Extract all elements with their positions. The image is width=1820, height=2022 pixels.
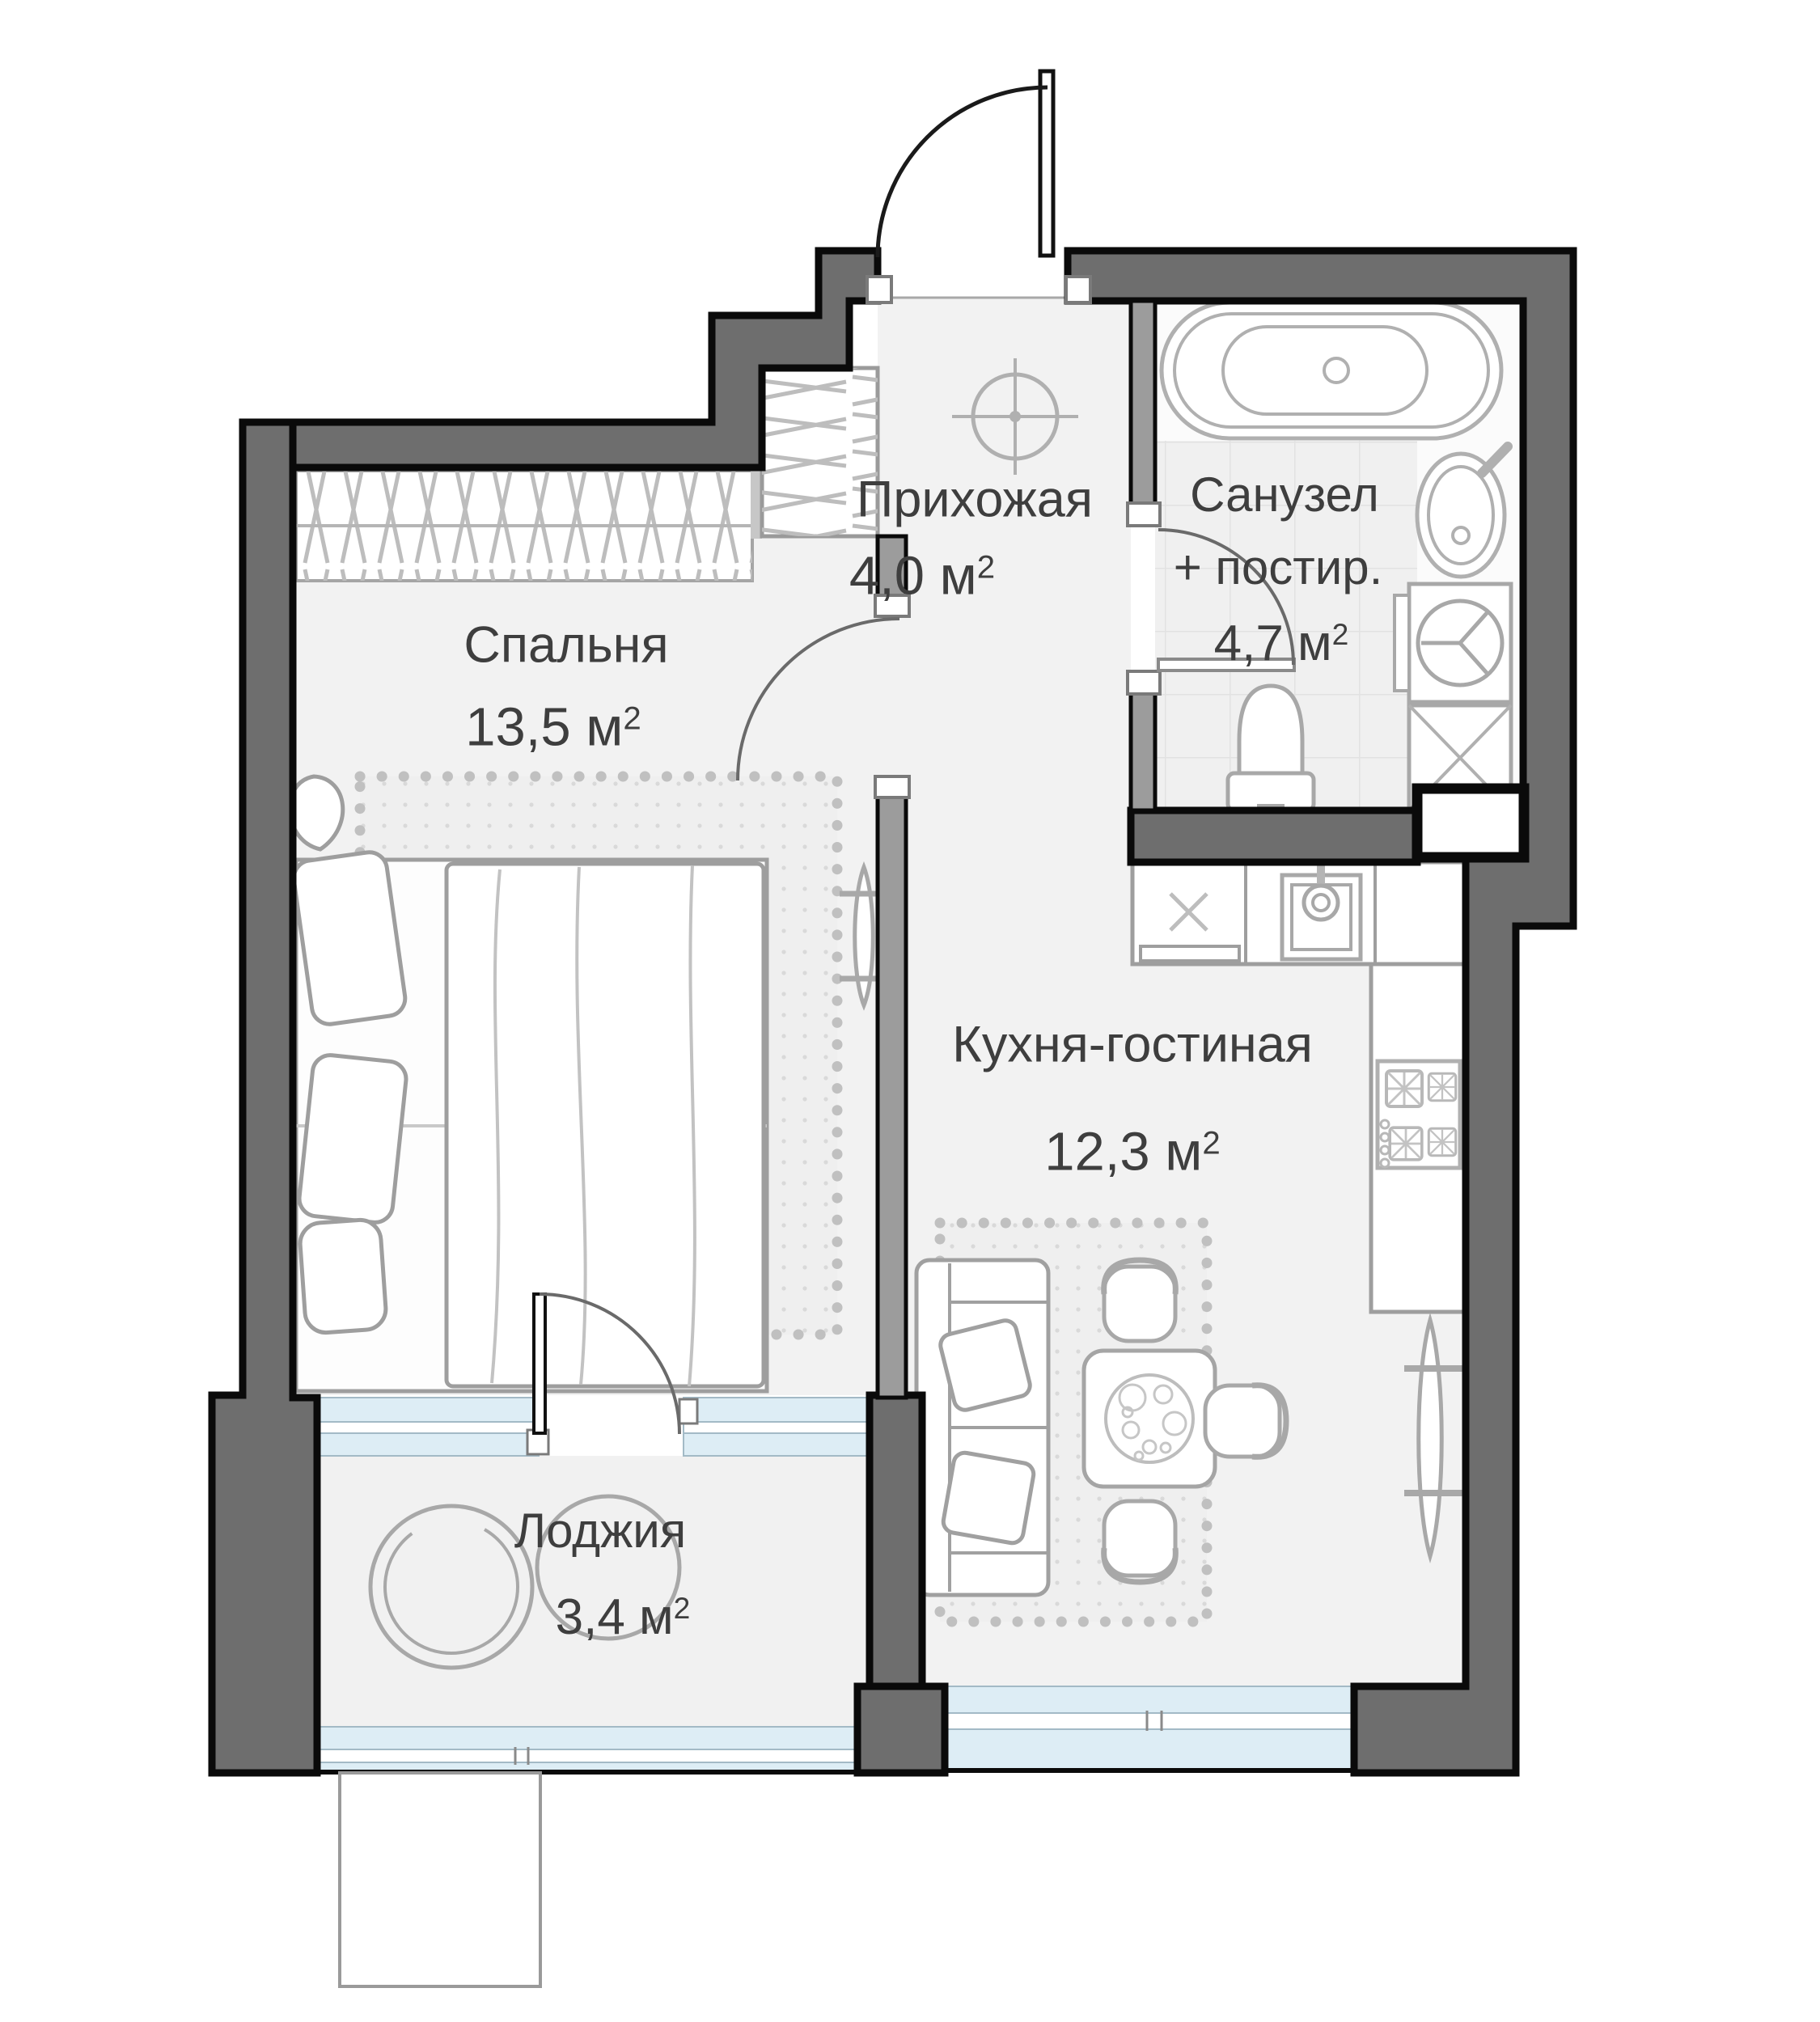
entrance-door bbox=[867, 71, 1090, 302]
room-name2: + постир. bbox=[1174, 540, 1383, 594]
bathroom-label: Санузел bbox=[1190, 471, 1379, 519]
chair bbox=[1104, 1260, 1176, 1341]
drawer-handle bbox=[1141, 946, 1239, 961]
wardrobe bbox=[296, 467, 762, 581]
chair bbox=[1104, 1501, 1176, 1582]
hallway-area: 4,0 м2 bbox=[849, 549, 995, 603]
pillow bbox=[942, 1451, 1035, 1545]
bed bbox=[291, 850, 767, 1391]
washing-machine-icon bbox=[1395, 584, 1511, 702]
room-name: Спальня bbox=[463, 617, 668, 674]
room-name: Лоджия bbox=[514, 1504, 687, 1558]
room-area-sup: 2 bbox=[623, 700, 641, 736]
bathtub-icon bbox=[1162, 302, 1501, 438]
pillow bbox=[938, 1318, 1032, 1412]
bathroom-label-line2: + постир. bbox=[1174, 544, 1383, 592]
bedroom-label: Спальня bbox=[463, 620, 668, 671]
door-swing-arc bbox=[878, 87, 1048, 257]
bathroom-area: 4,7 м2 bbox=[1214, 619, 1349, 669]
chair bbox=[1205, 1385, 1286, 1457]
room-name: Кухня-гостиная bbox=[952, 1017, 1313, 1073]
room-name: Прихожая bbox=[857, 472, 1093, 528]
door-leaf bbox=[534, 1294, 545, 1433]
room-area-sup: 2 bbox=[977, 548, 995, 585]
balcony-platform bbox=[340, 1773, 540, 1986]
stove-icon bbox=[1378, 1061, 1460, 1168]
room-area: 4,7 м bbox=[1214, 615, 1332, 671]
floor-plan: Спальня 13,5 м2 Прихожая 4,0 м2 Санузел … bbox=[0, 0, 1820, 2022]
floor-plan-drawing bbox=[0, 0, 1820, 2022]
room-area: 4,0 м bbox=[849, 546, 977, 607]
plate bbox=[1106, 1375, 1193, 1462]
pillow bbox=[291, 850, 407, 1026]
kitchen-label: Кухня-гостиная bbox=[952, 1020, 1313, 1071]
dining-table bbox=[1084, 1351, 1215, 1487]
room-area: 12,3 м bbox=[1044, 1122, 1202, 1182]
door-leaf bbox=[1040, 71, 1053, 256]
loggia-label: Лоджия bbox=[514, 1507, 687, 1555]
loggia-partition-glazing bbox=[317, 1398, 870, 1456]
room-area: 13,5 м bbox=[465, 697, 623, 758]
room-area-sup: 2 bbox=[674, 1591, 691, 1625]
loggia-window bbox=[317, 1727, 857, 1773]
loggia-area: 3,4 м2 bbox=[556, 1593, 691, 1643]
hallway-label: Прихожая bbox=[857, 475, 1093, 526]
room-area-sup: 2 bbox=[1202, 1124, 1220, 1161]
ventilation-shaft bbox=[1417, 789, 1524, 857]
room-area: 3,4 м bbox=[556, 1589, 674, 1645]
bedroom-area: 13,5 м2 bbox=[465, 700, 641, 755]
pillow bbox=[298, 1219, 387, 1335]
room-area-sup: 2 bbox=[1332, 617, 1349, 651]
kitchen-area: 12,3 м2 bbox=[1044, 1125, 1220, 1179]
kitchen-window bbox=[945, 1686, 1354, 1770]
room-name: Санузел bbox=[1190, 467, 1379, 522]
pillow bbox=[298, 1053, 408, 1224]
sofa bbox=[916, 1260, 1048, 1595]
